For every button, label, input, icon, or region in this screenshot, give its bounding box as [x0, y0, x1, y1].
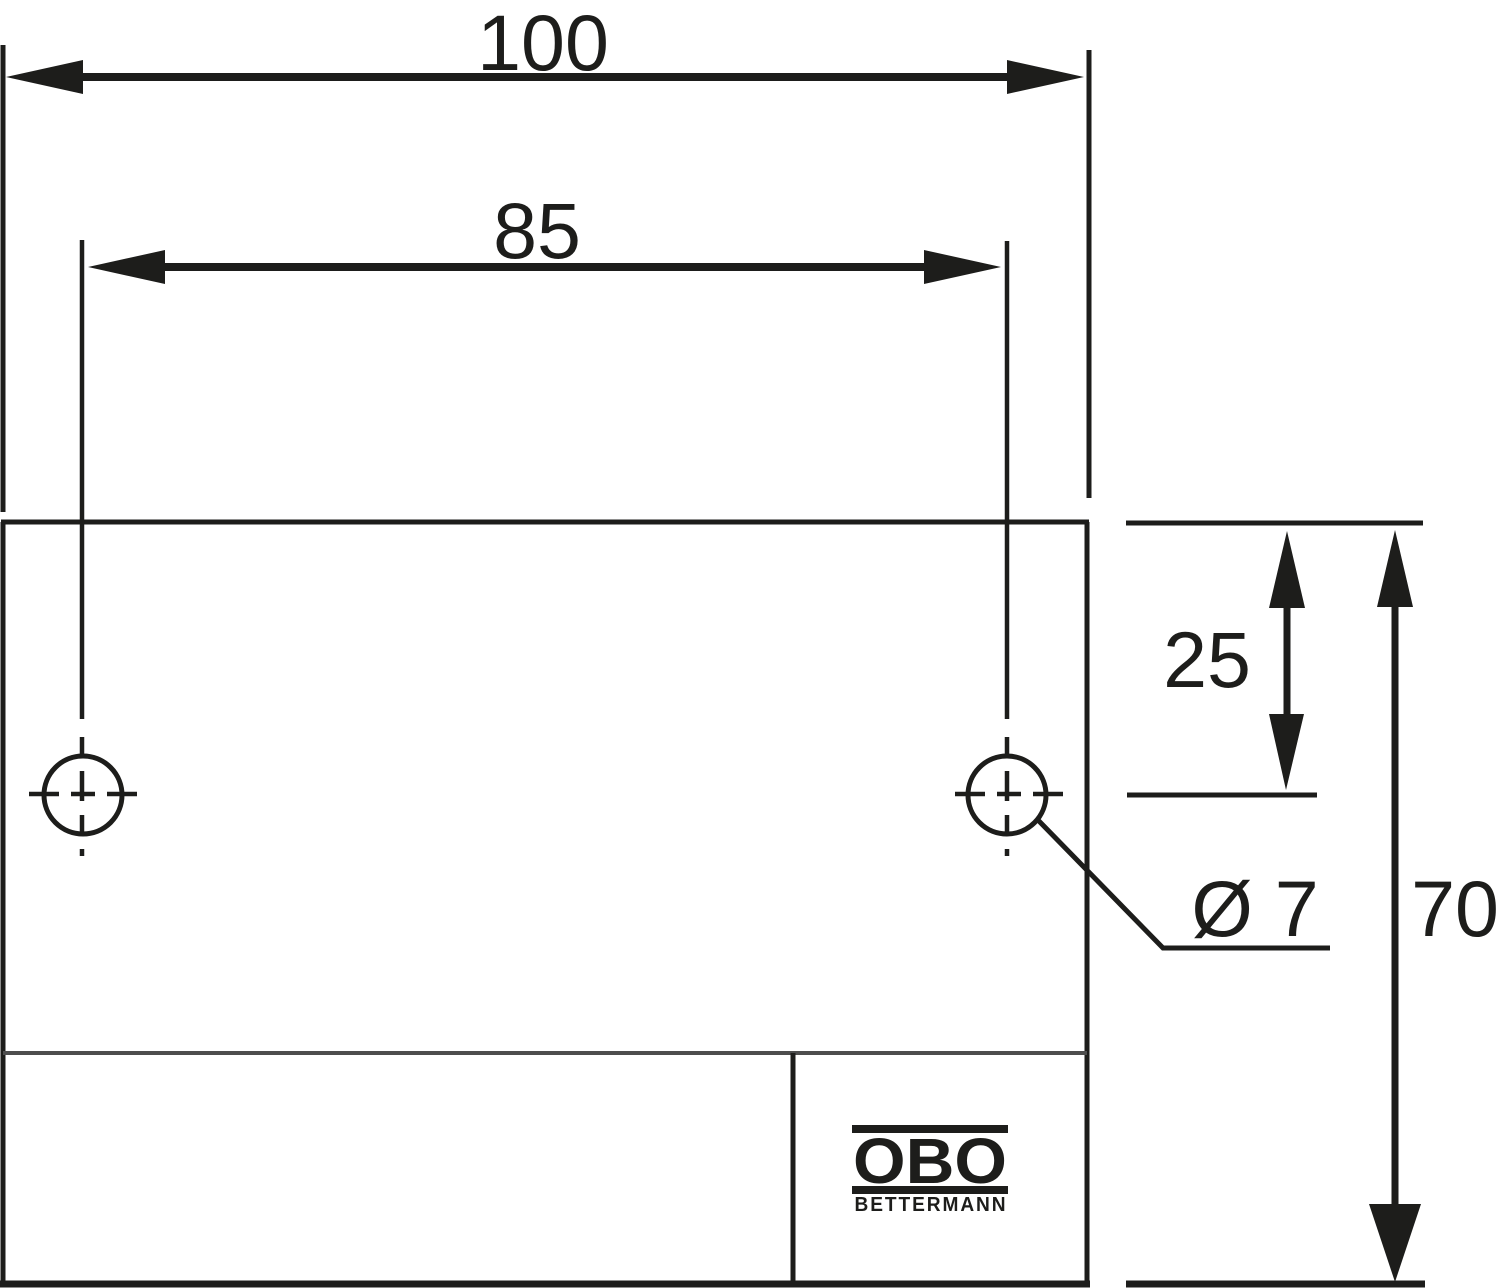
dim-25-label: 25 [1163, 615, 1251, 704]
hole-diameter-label: Ø 7 [1191, 864, 1318, 953]
dim-70-label: 70 [1411, 864, 1499, 953]
dim-100-label: 100 [477, 0, 609, 87]
dimension-drawing: 100 85 25 70 Ø 7 OBO BETTERMANN [0, 0, 1500, 1288]
dim-85-label: 85 [493, 186, 581, 275]
logo-subbrand-text: BETTERMANN [855, 1194, 1008, 1216]
technical-drawing-page: 100 85 25 70 Ø 7 OBO BETTERMANN [0, 0, 1500, 1288]
logo-bottom-bar [852, 1186, 1008, 1194]
drawing-background [0, 0, 1500, 1288]
obo-bettermann-logo: OBO BETTERMANN [852, 1125, 1008, 1216]
